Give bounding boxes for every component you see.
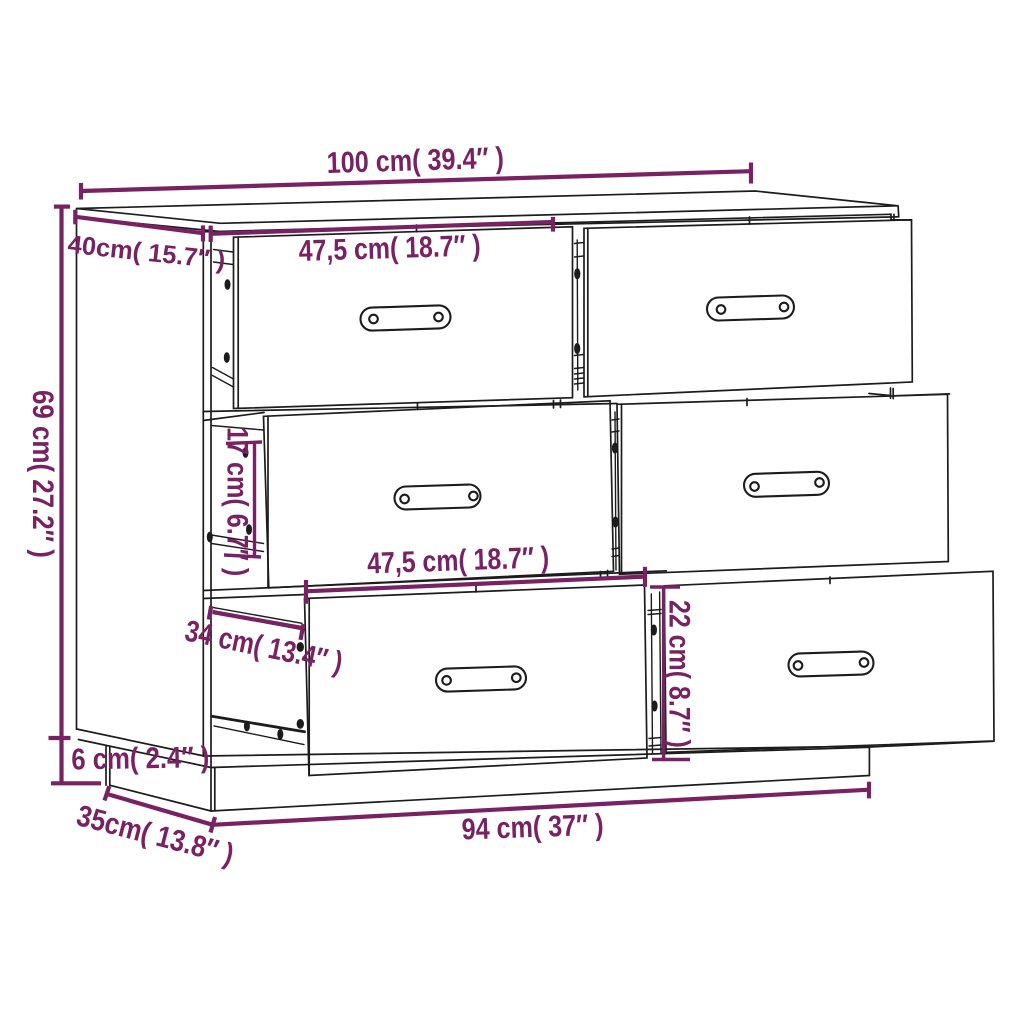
svg-text:69 cm( 27.2″ ): 69 cm( 27.2″ ) <box>26 390 59 558</box>
svg-text:47,5 cm( 18.7″ ): 47,5 cm( 18.7″ ) <box>298 228 481 267</box>
svg-text:94 cm( 37″ ): 94 cm( 37″ ) <box>461 807 604 846</box>
svg-text:100 cm( 39.4″ ): 100 cm( 39.4″ ) <box>326 141 504 180</box>
svg-text:22 cm( 8.7″ ): 22 cm( 8.7″ ) <box>663 600 697 748</box>
svg-text:6 cm( 2.4″ ): 6 cm( 2.4″ ) <box>71 740 210 776</box>
svg-text:47,5 cm( 18.7″ ): 47,5 cm( 18.7″ ) <box>367 540 550 580</box>
svg-text:17 cm( 6.7″ ): 17 cm( 6.7″ ) <box>221 427 255 576</box>
